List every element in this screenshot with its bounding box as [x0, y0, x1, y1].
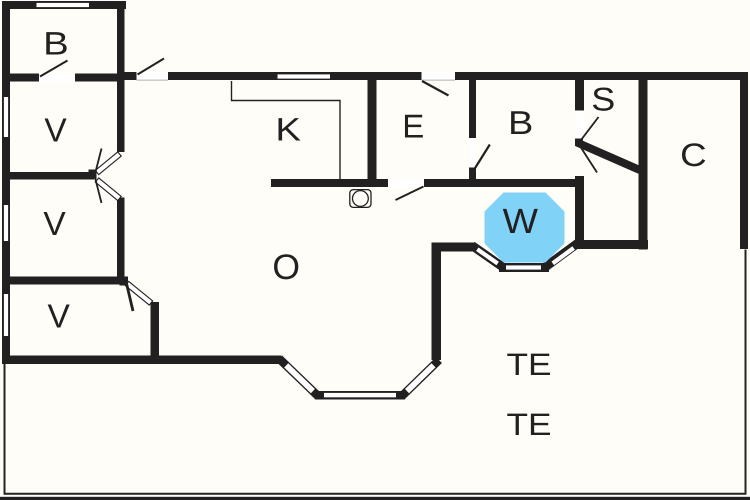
svg-text:K: K: [275, 112, 301, 148]
svg-text:TE: TE: [507, 347, 552, 382]
svg-text:V: V: [43, 206, 66, 243]
svg-text:V: V: [44, 113, 67, 150]
svg-text:B: B: [508, 104, 533, 141]
svg-text:E: E: [402, 108, 424, 145]
svg-text:V: V: [48, 299, 71, 336]
svg-text:O: O: [272, 247, 300, 287]
svg-text:S: S: [591, 80, 615, 117]
svg-text:TE: TE: [507, 407, 552, 442]
svg-text:B: B: [43, 26, 69, 62]
svg-text:C: C: [680, 137, 707, 173]
svg-text:W: W: [503, 202, 538, 241]
